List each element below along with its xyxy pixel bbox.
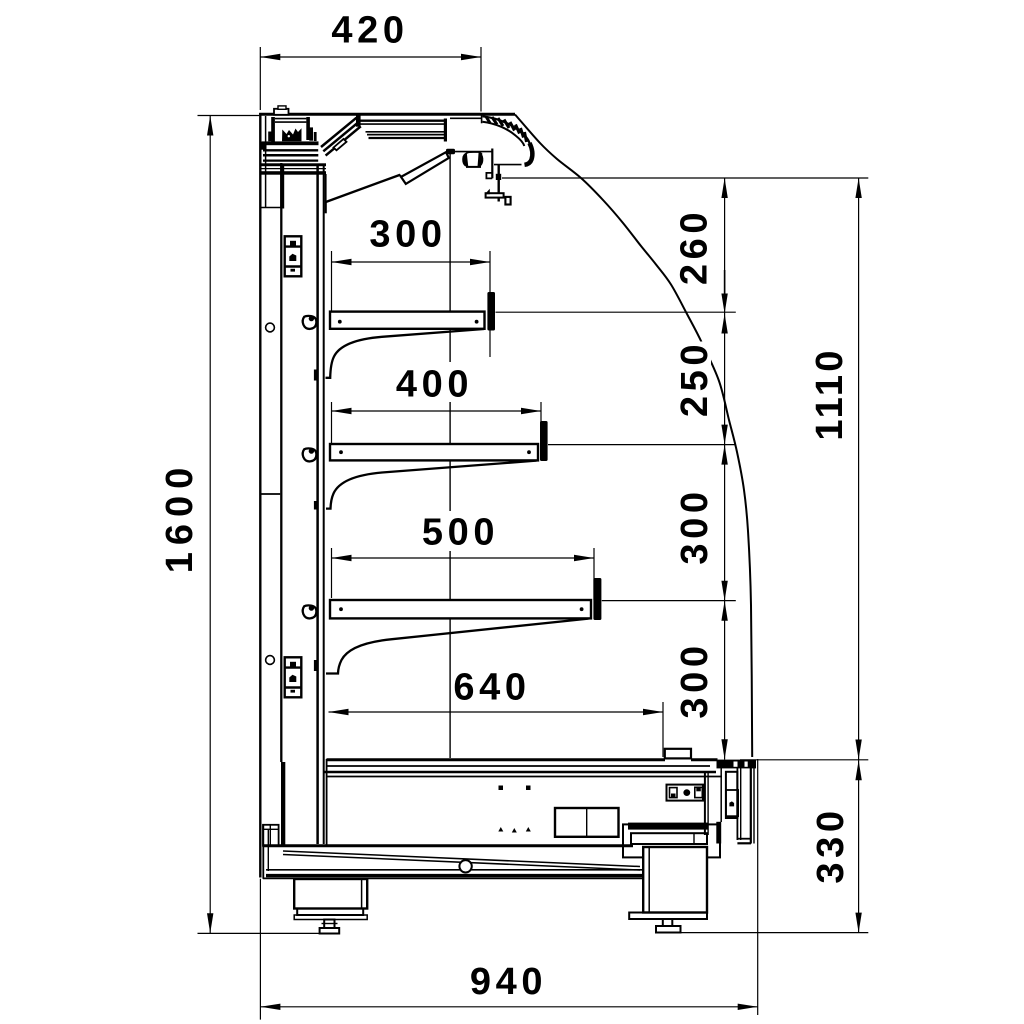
- svg-text:420: 420: [331, 10, 408, 52]
- svg-text:260: 260: [674, 208, 716, 285]
- svg-text:300: 300: [674, 641, 716, 718]
- svg-text:300: 300: [674, 487, 716, 564]
- svg-text:1600: 1600: [159, 461, 201, 574]
- svg-text:640: 640: [453, 667, 530, 709]
- svg-text:1110: 1110: [809, 347, 851, 440]
- svg-text:940: 940: [470, 961, 547, 1003]
- svg-text:250: 250: [674, 340, 716, 417]
- svg-text:400: 400: [396, 364, 473, 406]
- svg-text:500: 500: [422, 512, 499, 554]
- svg-text:330: 330: [810, 806, 852, 883]
- svg-text:300: 300: [369, 214, 446, 256]
